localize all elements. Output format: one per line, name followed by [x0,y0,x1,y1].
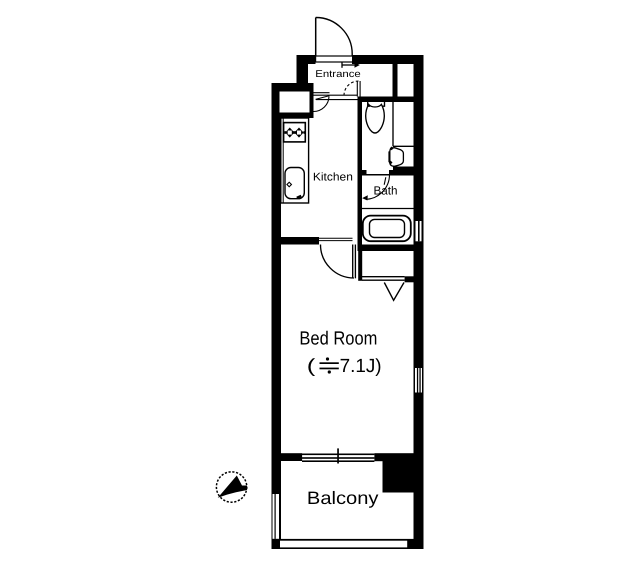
svg-text:Kitchen: Kitchen [313,172,353,184]
svg-text:Bed Room: Bed Room [299,329,377,350]
svg-text:Balcony: Balcony [307,488,379,508]
svg-text:7.1J): 7.1J) [340,356,382,377]
svg-text:(: ( [307,356,316,377]
svg-text:Entrance: Entrance [315,69,361,80]
svg-text:Bath: Bath [374,184,398,198]
